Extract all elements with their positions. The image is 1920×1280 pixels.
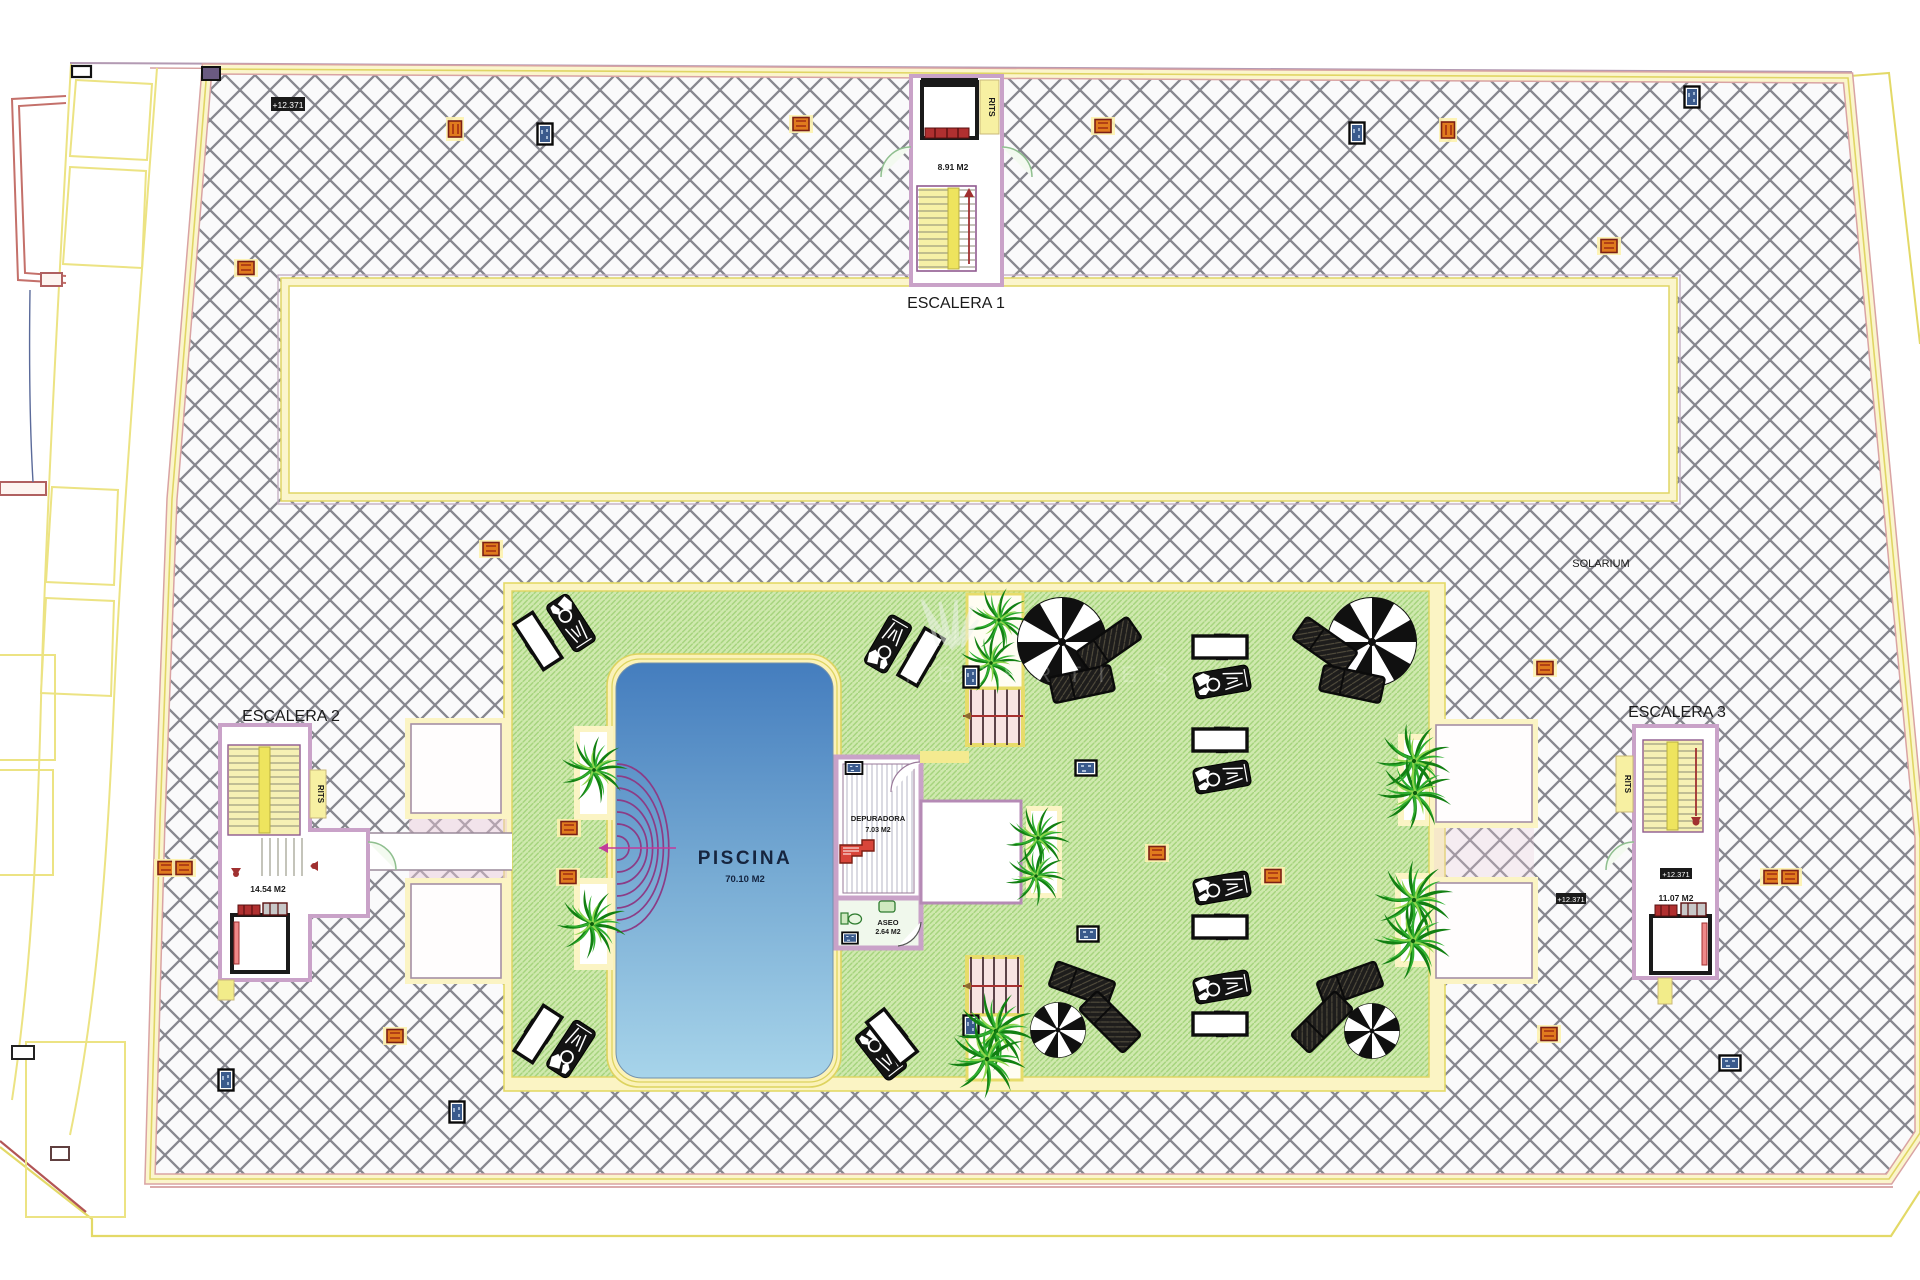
svg-text:70.10 M2: 70.10 M2 — [725, 874, 765, 885]
svg-text:RITS: RITS — [1623, 775, 1632, 794]
svg-text:ASEO: ASEO — [877, 918, 898, 927]
svg-text:RITS: RITS — [987, 97, 997, 117]
svg-text:SOLARIUM: SOLARIUM — [1572, 558, 1629, 570]
svg-text:ROPERTIES: ROPERTIES — [905, 662, 1185, 687]
svg-text:11.07 M2: 11.07 M2 — [1659, 893, 1694, 903]
svg-text:RITS: RITS — [316, 785, 325, 804]
svg-text:8.91 M2: 8.91 M2 — [938, 162, 969, 172]
svg-text:ESCALERA 2: ESCALERA 2 — [242, 708, 340, 725]
svg-text:+12.371: +12.371 — [273, 100, 304, 110]
svg-text:+12.371: +12.371 — [1557, 895, 1584, 904]
svg-text:ESCALERA 1: ESCALERA 1 — [907, 295, 1005, 312]
svg-text:+12.371: +12.371 — [1662, 870, 1689, 879]
svg-text:PISCINA: PISCINA — [698, 848, 793, 869]
svg-text:14.54 M2: 14.54 M2 — [250, 884, 286, 894]
svg-text:ESCALERA 3: ESCALERA 3 — [1628, 704, 1726, 721]
svg-text:DEPURADORA: DEPURADORA — [851, 814, 906, 823]
svg-text:2.64 M2: 2.64 M2 — [875, 929, 900, 936]
svg-text:7.03 M2: 7.03 M2 — [865, 827, 890, 834]
